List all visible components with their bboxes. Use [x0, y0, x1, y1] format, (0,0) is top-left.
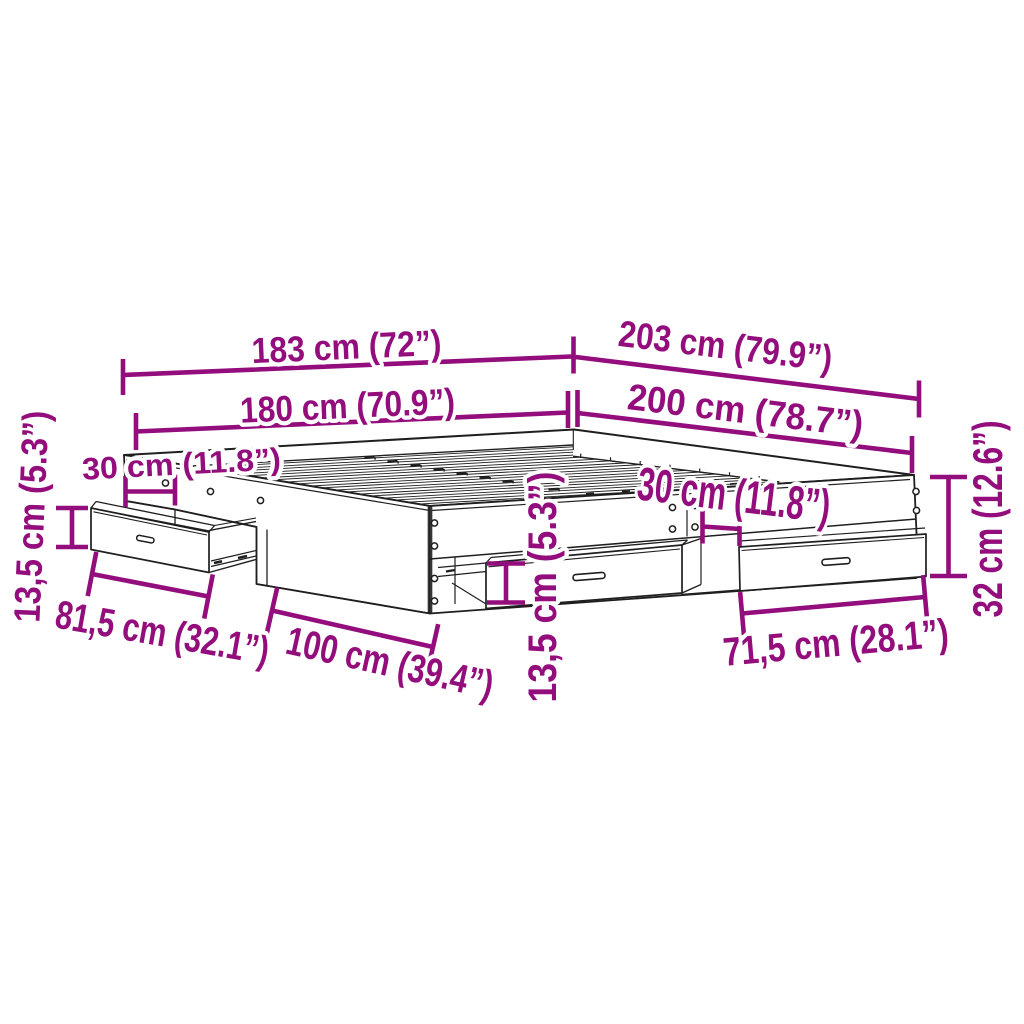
- svg-text:100 cm (39.4”): 100 cm (39.4”): [282, 619, 498, 708]
- svg-text:71,5 cm (28.1”): 71,5 cm (28.1”): [721, 611, 950, 675]
- svg-text:13,5 cm (5.3”): 13,5 cm (5.3”): [521, 472, 565, 703]
- svg-text:183 cm (72”): 183 cm (72”): [251, 322, 443, 371]
- svg-text:32 cm (12.6”): 32 cm (12.6”): [964, 421, 1011, 618]
- svg-text:180 cm (70.9”): 180 cm (70.9”): [239, 380, 456, 430]
- svg-text:203 cm (79.9”): 203 cm (79.9”): [616, 313, 834, 379]
- svg-text:81,5 cm (32.1”): 81,5 cm (32.1”): [52, 593, 272, 674]
- svg-text:13,5 cm (5.3”): 13,5 cm (5.3”): [6, 410, 56, 624]
